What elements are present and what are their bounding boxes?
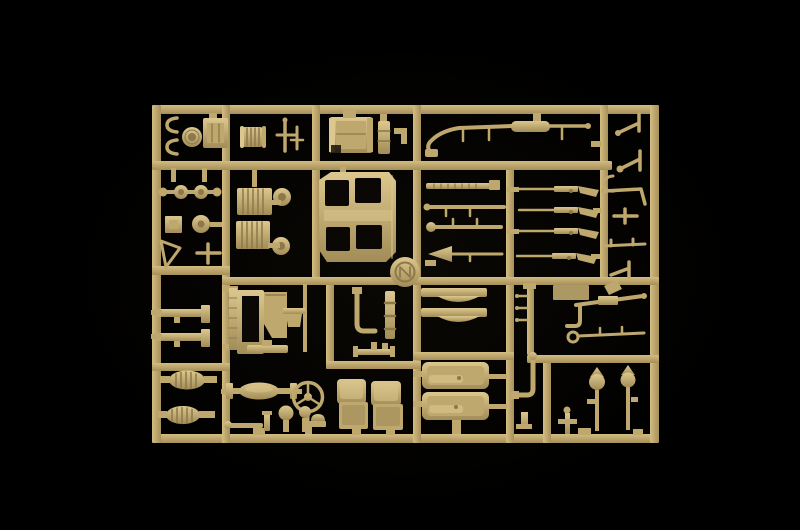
t-handle-end-left	[353, 346, 358, 357]
shackle-bar-2-bracket	[201, 329, 210, 347]
shackle-bar-2	[158, 333, 205, 341]
sill-bar-bump	[262, 340, 272, 346]
seat-back-rod	[303, 284, 307, 352]
shackle-bar-1-knob	[154, 309, 163, 318]
small-post-cap	[262, 411, 272, 415]
leaf-spring-1	[421, 288, 487, 297]
pegged-rod-cap	[523, 283, 536, 289]
radiator-core-2-stub-r	[199, 411, 215, 418]
inner-rail-h4-right	[527, 355, 659, 363]
shackle-bar-1-tab	[174, 317, 180, 323]
bent-pipe-knob	[529, 352, 537, 360]
inner-rail-v5	[506, 163, 514, 443]
air-filter-cylinder	[242, 127, 263, 147]
headlight-1-stem	[283, 420, 289, 432]
inner-rail-h4-fenders	[413, 352, 514, 360]
mirror-2-head	[621, 373, 636, 388]
pegged-rod-knob-1	[515, 294, 519, 298]
cab-panel-window-4	[356, 225, 382, 249]
mg-mount-plate	[553, 285, 589, 300]
exhaust-elbow-foot	[352, 287, 362, 294]
inner-rail-v3	[326, 277, 334, 369]
engine-stub-1	[269, 200, 281, 205]
front-axle-drum-1-hub	[178, 189, 184, 195]
mirror-1-tab	[587, 399, 595, 404]
shackle-bar-1-bracket	[201, 305, 210, 323]
tie-rod-1-knob	[424, 204, 431, 211]
rifle-1-bolt	[569, 189, 573, 193]
headlight-2-stem	[302, 418, 308, 432]
pegged-rod-knob-2	[515, 306, 519, 310]
radiator-box-core	[207, 123, 224, 143]
shackle-bar-2-knob	[154, 333, 163, 342]
fender-2-highlight	[429, 405, 463, 413]
gate-stub-fender2-right	[488, 404, 507, 409]
gate-stub-fender2-left	[413, 401, 423, 407]
fender-2-pin	[454, 405, 458, 409]
radiator-box-tab	[209, 113, 217, 118]
inner-rail-h1	[152, 161, 612, 170]
mg-muzzle	[641, 293, 647, 299]
sprue-photo	[0, 0, 800, 530]
inner-rail-v6	[600, 105, 608, 285]
gate-stub-mirror-1	[578, 428, 591, 435]
tie-rod-2-knob	[426, 222, 436, 232]
rifle-3-bolt	[569, 231, 573, 235]
side-panel-strip	[378, 121, 390, 154]
gun-barrel-ribbed	[426, 183, 491, 189]
seat-1-cushion-shade	[342, 405, 365, 425]
gate-stub-fender1-right	[488, 374, 507, 379]
gate-stub-rifle-1	[507, 187, 519, 192]
inner-rail-h2-left	[152, 266, 230, 275]
radiator-core-1-stub-r	[204, 376, 217, 383]
shackle-bar-1	[158, 309, 205, 317]
mg-receiver	[598, 296, 618, 305]
exhaust-tip	[585, 123, 591, 129]
headlight-1	[279, 406, 294, 421]
shackle-bar-2-tab	[174, 341, 180, 347]
gate-stub-fender2-bottom	[452, 419, 461, 434]
radiator-core-1	[169, 371, 205, 390]
gate-stub-fender1-left	[413, 371, 423, 377]
engine-stub-2	[268, 243, 280, 248]
linkage-rod	[229, 423, 263, 428]
sprue-photo-svg	[0, 0, 800, 530]
fuel-tank-cap-right	[367, 118, 373, 152]
inner-rail-h4-seats	[326, 361, 421, 369]
radiator-core-2-stub-l	[158, 411, 167, 418]
fuel-tank-notch	[331, 145, 341, 153]
t-handle-stem	[371, 342, 377, 350]
gun-barrel-block	[489, 180, 500, 190]
seat-2-cushion-shade	[376, 407, 400, 426]
cab-panel-band	[324, 210, 392, 221]
front-axle-knob-right	[213, 188, 222, 197]
radiator-core-1-stub-l	[160, 376, 170, 383]
crank-handle-knob	[564, 407, 571, 414]
linkage-rod-ball	[224, 421, 232, 429]
cab-panel-window-2	[355, 178, 381, 203]
headlight-2	[299, 406, 311, 418]
t-handle-end-right	[390, 346, 395, 357]
front-axle-knob-left	[159, 188, 168, 197]
leaf-spring-2	[421, 308, 487, 317]
front-axle-drum-2-hub	[198, 189, 204, 195]
exhaust-muffler	[511, 121, 550, 132]
inner-rail-h4-left	[152, 363, 230, 371]
small-post	[264, 413, 270, 431]
bracket-small-l2	[401, 128, 407, 144]
rifle-1-body	[554, 186, 578, 192]
small-block-base	[516, 424, 532, 429]
seat-back-shelf	[283, 308, 305, 314]
seat-back-face	[286, 314, 302, 327]
inner-rail-v8	[543, 355, 551, 443]
mirror-2-tab	[631, 397, 638, 402]
inner-rail-v2	[312, 105, 320, 285]
rifle-2-bolt	[569, 210, 573, 214]
gate-stub-exhaust-right	[591, 141, 601, 147]
fuel-tank-tab	[343, 109, 356, 118]
hub-cap-base	[309, 421, 326, 427]
bracket-r2-knob	[617, 166, 624, 173]
rifle-4-bolt	[567, 256, 571, 260]
lever-part-1-knob	[283, 118, 288, 123]
engine-flywheel-1-hub	[278, 193, 286, 201]
bracket-r1-knob	[615, 130, 621, 136]
drive-shaft-flange-left	[226, 383, 233, 399]
funnel-foot	[425, 260, 436, 266]
rifle-3-body	[554, 228, 578, 234]
mount-plate-recess	[169, 220, 178, 229]
gate-stub-axle-2	[202, 168, 207, 182]
gate-stub-mirror-2	[633, 429, 643, 435]
seat-2-backrest-face	[374, 384, 398, 401]
mirror-1-head	[589, 374, 605, 390]
inner-rail-h3	[222, 277, 659, 285]
air-filter-cap-left	[240, 126, 244, 148]
leaf-strip	[229, 288, 237, 350]
cab-panel-window-1	[325, 180, 349, 206]
radiator-core-2	[166, 406, 200, 424]
outer-rail-right	[650, 105, 659, 443]
crank-handle-arms	[558, 419, 577, 424]
spare-disc-stub	[210, 222, 222, 227]
gate-stub-rifle-3	[507, 229, 519, 234]
air-filter-cap-right	[262, 126, 266, 148]
bracket-r4-knob	[601, 188, 607, 194]
mirror-1-stem	[595, 390, 599, 431]
rifle-4-body	[552, 253, 576, 259]
pegged-rod-knob-3	[515, 318, 519, 322]
cab-panel-window-3	[326, 227, 350, 251]
sill-bar	[247, 345, 288, 353]
gate-stub-axle-1	[171, 168, 176, 182]
mirror-2-stem	[626, 387, 630, 430]
rifle-2-body	[554, 207, 578, 213]
pulley-wheel-hub	[188, 133, 196, 141]
drive-shaft-highlight	[245, 386, 273, 393]
spare-disc-hub	[198, 221, 205, 228]
side-panel-tab	[380, 114, 387, 121]
fender-1-pin	[457, 376, 461, 380]
engine-block-2	[236, 221, 270, 249]
bent-pipe-pad	[511, 391, 519, 399]
door-frame-window	[242, 296, 259, 342]
gate-stub-small-parts	[253, 428, 265, 435]
gate-stub-engine	[252, 170, 257, 187]
seat-1-backrest-face	[340, 382, 363, 399]
